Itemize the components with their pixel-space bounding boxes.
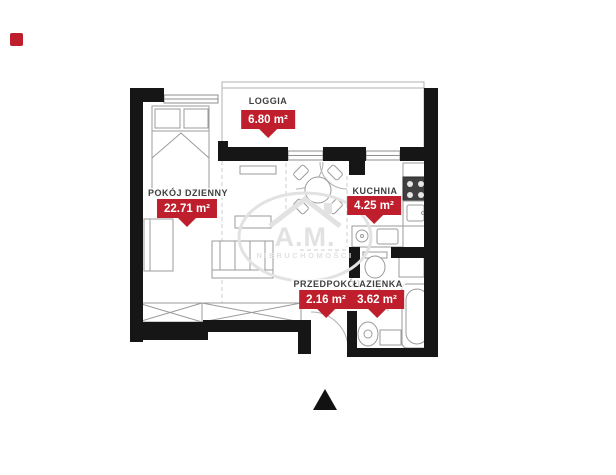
area-tag-przedpokoj: 2.16 m² [299, 290, 353, 309]
area-tag-kuchnia: 4.25 m² [347, 196, 401, 215]
bed [152, 106, 209, 192]
site-logo [10, 33, 23, 46]
room-label-kuchnia: KUCHNIA [351, 186, 400, 196]
washing-machine [399, 255, 424, 277]
wardrobes [138, 303, 301, 322]
desk [144, 219, 173, 271]
area-tag-loggia: 6.80 m² [241, 110, 295, 129]
room-label-pokoj-dzienny: POKÓJ DZIENNY [146, 188, 230, 198]
watermark-title: A.M. [275, 222, 336, 253]
washbasin [358, 322, 378, 346]
area-tag-lazienka: 3.62 m² [350, 290, 404, 309]
room-label-loggia: LOGGIA [247, 96, 290, 106]
toilet [365, 256, 385, 278]
tv-sideboard [240, 166, 276, 174]
room-label-lazienka: ŁAZIENKA [351, 279, 405, 289]
area-tag-pokoj-dzienny: 22.71 m² [157, 199, 217, 218]
watermark-subtitle: NIERUCHOMOŚCI [256, 251, 353, 260]
north-arrow-icon [313, 389, 337, 410]
floor-plan-page: A.M. NIERUCHOMOŚCI LOGGIA 6.80 m² POKÓJ … [0, 0, 616, 475]
bath-cabinet [380, 330, 401, 345]
